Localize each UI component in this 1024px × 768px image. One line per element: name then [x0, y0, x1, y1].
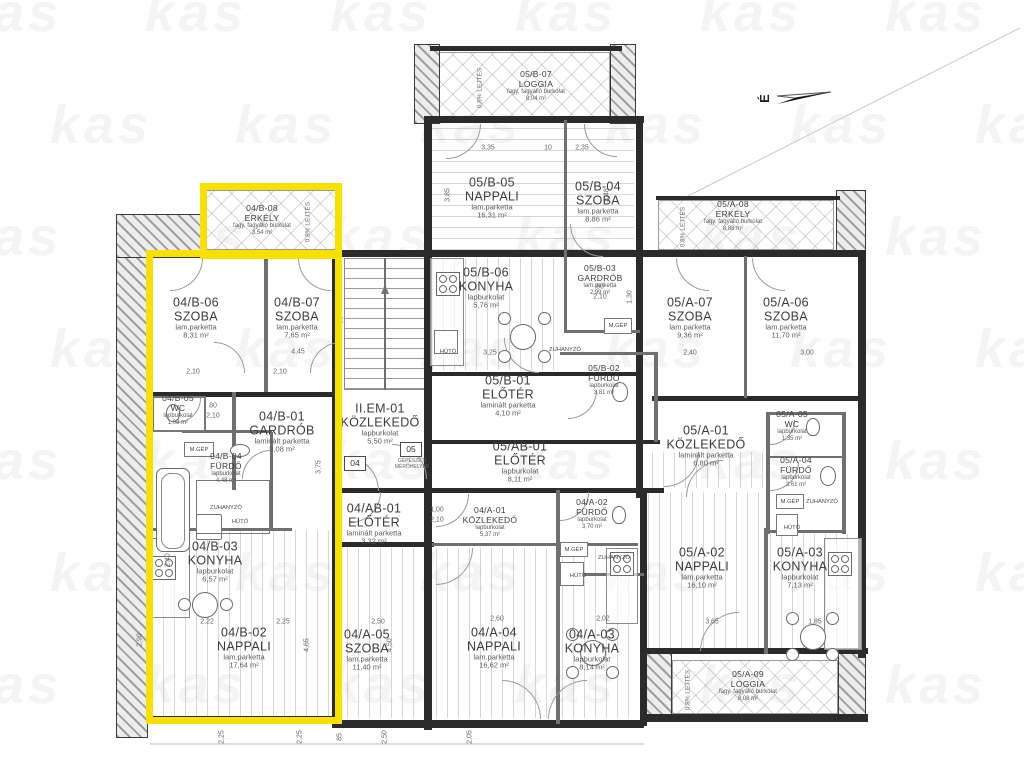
- wall-erkely-pier-right: [836, 190, 866, 256]
- room-name: WC: [162, 403, 194, 413]
- dimension-label: 3,65: [705, 619, 719, 626]
- entrance-marker-04: 04: [344, 456, 366, 471]
- room-name: FÜRDŐ: [210, 461, 242, 471]
- room-label-04b06: 04/B-06 SZOBA lam.parketta 8,31 m²: [173, 296, 219, 341]
- washer-label: M.GÉP: [609, 323, 628, 329]
- table: [510, 324, 536, 350]
- chair: [178, 598, 191, 611]
- dimension-label: 3,35: [481, 145, 495, 152]
- washer-label: M.GÉP: [781, 499, 800, 505]
- wall: [332, 488, 664, 493]
- dimension-label: 2,40: [683, 350, 697, 357]
- floor-plan: kaskaskaskaskaskaskaskaskaskaskaskaskask…: [0, 0, 1024, 768]
- wall: [203, 186, 339, 190]
- washer-label: M.GÉP: [190, 447, 209, 453]
- room-id: 05/B-05: [465, 176, 519, 190]
- dimension-label: 4,45: [291, 349, 305, 356]
- room-name: GARDRÓB: [249, 424, 314, 438]
- room-label-05a03: 05/A-03 KONYHA lapburkolat 7,13 m²: [773, 546, 828, 591]
- north-label: É: [757, 94, 772, 103]
- room-material: lapburkolat: [210, 471, 242, 478]
- partition: [556, 490, 560, 724]
- room-area: 16,10 m²: [675, 582, 729, 590]
- partition: [842, 412, 846, 534]
- fridge-label: HŰTŐ: [440, 349, 456, 355]
- room-name: KONYHA: [459, 280, 514, 294]
- room-id: II.EM-01: [340, 402, 419, 416]
- chair: [826, 648, 839, 661]
- chair: [538, 312, 551, 325]
- chair: [826, 612, 839, 625]
- bathtub: [156, 468, 190, 552]
- dimension-label: 1,00: [430, 507, 444, 514]
- room-area: 9,36 m²: [667, 332, 713, 340]
- room-id: 04/A-05: [344, 628, 390, 642]
- mechanical-note-line2: MÉRŐHELYEK: [395, 464, 429, 470]
- room-area: 9,08 m²: [249, 446, 314, 454]
- room-area: 4,48 m²: [210, 478, 242, 485]
- washer-label: M.GÉP: [565, 547, 584, 553]
- room-name: NAPPALI: [675, 560, 729, 574]
- room-name: ERKÉLY: [233, 213, 291, 223]
- room-area: 8,86 m²: [575, 216, 621, 224]
- room-name: ELŐTÉR: [480, 388, 535, 402]
- room-area: 7,65 m²: [274, 332, 320, 340]
- partition: [264, 256, 268, 392]
- wall: [652, 396, 864, 401]
- room-area: 8,08 m²: [719, 696, 777, 703]
- room-label-05b05: 05/B-05 NAPPALI lam.parketta 16,31 m²: [465, 176, 519, 221]
- mechanical-note: GÉPÉSZETI MÉRŐHELYEK: [395, 458, 429, 470]
- wall-left-boundary: [116, 214, 148, 738]
- slope-label: 0,8% LEJTÉS: [685, 670, 692, 710]
- wall: [424, 116, 432, 730]
- dimension-label: 2,10: [430, 517, 444, 524]
- room-name: ELŐTÉR: [493, 454, 548, 468]
- chair: [786, 612, 799, 625]
- room-id: 05/A-01: [666, 424, 745, 438]
- room-id: 04/B-06: [173, 296, 219, 310]
- partition: [432, 543, 638, 546]
- partition: [564, 256, 567, 332]
- room-material: fagy. fagyálló burkolat: [719, 689, 777, 696]
- wall-loggia9-pier-right: [838, 650, 866, 722]
- room-label-05a01: 05/A-01 KÖZLEKEDŐ laminált parketta 6,80…: [666, 424, 745, 469]
- dimension-label: 2,10: [206, 413, 220, 420]
- dimension-label: 80: [209, 403, 217, 410]
- dimension-label: 2,60: [490, 616, 504, 623]
- room-name: NAPPALI: [465, 190, 519, 204]
- room-area: 3,61 m²: [780, 482, 812, 489]
- dimension-label: 10: [544, 145, 552, 152]
- room-label-05a06: 05/A-06 SZOBA lam.parketta 11,70 m²: [763, 296, 809, 341]
- room-material: lapburkolat: [576, 517, 608, 524]
- room-id: 05/B-06: [459, 266, 514, 280]
- slope-label: 0,8% LEJTÉS: [477, 68, 484, 108]
- room-name: KÖZLEKEDŐ: [666, 438, 745, 452]
- shower-label: ZUHANYZÓ: [598, 555, 630, 561]
- room-name: KONYHA: [188, 554, 243, 568]
- room-label-05b01: 05/B-01 ELŐTÉR laminált parketta 4,10 m²: [480, 374, 535, 419]
- room-name: WC: [776, 419, 808, 429]
- room-name: SZOBA: [274, 310, 320, 324]
- room-label-04a05: 04/A-05 SZOBA lam.parketta 11,40 m²: [344, 628, 390, 673]
- room-area: 5,76 m²: [459, 302, 514, 310]
- room-id: 04/B-02: [217, 626, 271, 640]
- dimension-label: 2,10: [273, 369, 287, 376]
- dimension-label: 2,25: [276, 619, 290, 626]
- table: [800, 624, 826, 650]
- room-name: SZOBA: [575, 194, 621, 208]
- room-name: SZOBA: [763, 310, 809, 324]
- dimension-label: 1,85: [808, 619, 822, 626]
- room-name: KÖZLEKEDŐ: [340, 416, 419, 430]
- dimension-label: 2,40: [165, 553, 172, 567]
- slope-label: 0,8% LEJTÉS: [305, 202, 312, 242]
- room-material: fagy. fagyálló burkolat: [704, 219, 762, 226]
- dimension-label: 3,00: [800, 350, 814, 357]
- dimension-label: 2,50: [371, 619, 385, 626]
- room-name: KONYHA: [565, 642, 620, 656]
- room-label-04b07: 04/B-07 SZOBA lam.parketta 7,65 m²: [274, 296, 320, 341]
- room-label-05a07: 05/A-07 SZOBA lam.parketta 9,36 m²: [667, 296, 713, 341]
- dimension-label: 4,65: [304, 638, 311, 652]
- room-label-04a04: 04/A-04 NAPPALI lam.parketta 16,62 m²: [467, 626, 521, 671]
- room-area: 8,31 m²: [173, 332, 219, 340]
- chair: [786, 648, 799, 661]
- room-label-04b04: 04/B-04 FÜRDŐ lapburkolat 4,48 m²: [210, 452, 242, 484]
- stair-divider: [384, 258, 386, 390]
- room-area: 8,11 m²: [493, 476, 548, 484]
- room-id: 04/B-03: [188, 540, 243, 554]
- room-name: NAPPALI: [217, 640, 271, 654]
- room-name: FÜRDŐ: [588, 373, 620, 383]
- room-name: KÖZLEKEDŐ: [463, 515, 518, 525]
- room-name: LOGGIA: [507, 79, 565, 89]
- room-area: 16,62 m²: [467, 662, 521, 670]
- room-label-05b04: 05/B-04 SZOBA lam.parketta 8,86 m²: [575, 180, 621, 225]
- room-label-05b07: 05/B-07 LOGGIA fagy. fagyálló burkolat 8…: [507, 70, 565, 102]
- partition: [764, 528, 768, 654]
- room-area: 11,70 m²: [763, 332, 809, 340]
- room-material: lapburkolat: [776, 429, 808, 436]
- room-label-05a04: 05/A-04 FÜRDŐ lapburkolat 3,61 m²: [780, 456, 812, 488]
- room-name: SZOBA: [173, 310, 219, 324]
- room-label-04b08: 04/B-08 ERKÉLY fagy. fagyálló burkolat 3…: [233, 204, 291, 236]
- room-name: SZOBA: [344, 642, 390, 656]
- wall: [640, 490, 647, 726]
- room-id: 05/A-02: [675, 546, 729, 560]
- room-material: fagy. fagyálló burkolat: [507, 89, 565, 96]
- dimension-label: 2,02: [596, 616, 610, 623]
- room-name: NAPPALI: [467, 640, 521, 654]
- dimension-label: 2,50: [382, 730, 389, 744]
- slope-label: 0,8% LEJTÉS: [680, 207, 687, 247]
- dimension-label: 3,75: [316, 460, 323, 474]
- cooktop: [828, 552, 852, 576]
- dimension-label: 2,05: [467, 730, 474, 744]
- room-label-05a09: 05/A-09 LOGGIA fagy. fagyálló burkolat 8…: [719, 670, 777, 702]
- dimension-label: 3,85: [445, 188, 452, 202]
- room-id: 05/B-01: [480, 374, 535, 388]
- shower-label: ZUHANYZÓ: [806, 499, 838, 505]
- chair: [498, 312, 511, 325]
- room-id: 05/B-04: [575, 180, 621, 194]
- room-id: 04/B-07: [274, 296, 320, 310]
- room-name: LOGGIA: [719, 679, 777, 689]
- room-area: 3,70 m²: [576, 524, 608, 531]
- room-name: ERKÉLY: [704, 209, 762, 219]
- room-label-05a05: 05/A-05 WC lapburkolat 1,35 m²: [776, 410, 808, 442]
- room-area: 2,99 m²: [577, 290, 622, 297]
- room-area: 11,40 m²: [344, 664, 390, 672]
- room-material: lam.parketta: [577, 283, 622, 290]
- entrance-marker-05: 05: [400, 442, 422, 457]
- room-id: 04/B-01: [249, 410, 314, 424]
- room-id: 05/A-06: [763, 296, 809, 310]
- wall: [644, 714, 868, 722]
- dimension-label: 2,25: [297, 730, 304, 744]
- dimension-label: 2,25: [219, 730, 226, 744]
- room-name: KONYHA: [773, 560, 828, 574]
- room-area: 6,57 m²: [188, 576, 243, 584]
- chair: [498, 350, 511, 363]
- wall: [148, 250, 866, 257]
- fridge-label: HŰTŐ: [232, 519, 248, 525]
- room-area: 3,81 m²: [588, 390, 620, 397]
- fridge-label: HŰTŐ: [570, 573, 586, 579]
- cooktop: [436, 272, 460, 296]
- room-area: 6,80 m²: [666, 460, 745, 468]
- room-area: 1,35 m²: [776, 436, 808, 443]
- dimension-label: 85: [337, 733, 344, 741]
- chair: [220, 598, 233, 611]
- room-area: 3,54 m²: [233, 230, 291, 237]
- wall: [332, 720, 644, 728]
- room-label-04b05: 04/B-05 WC lapburkolat 1,08 m²: [162, 394, 194, 426]
- room-material: lapburkolat: [588, 383, 620, 390]
- room-area: 8,88 m²: [704, 226, 762, 233]
- north-arrow: É: [760, 88, 833, 108]
- room-material: lapburkolat: [463, 525, 518, 532]
- wall: [430, 46, 622, 51]
- room-id: 04/AB-01: [346, 502, 401, 516]
- room-material: fagy. fagyálló burkolat: [233, 223, 291, 230]
- room-material: lapburkolat: [162, 413, 194, 420]
- wall-loggia-pier-right: [610, 44, 636, 124]
- room-id: 05/A-03: [773, 546, 828, 560]
- room-area: 16,31 m²: [465, 212, 519, 220]
- toilet: [806, 418, 820, 436]
- room-label-iiem01: II.EM-01 KÖZLEKEDŐ lapburkolat 5,50 m²: [340, 402, 419, 447]
- room-area: 1,08 m²: [162, 420, 194, 427]
- room-area: 17,64 m²: [217, 662, 271, 670]
- shower-label: ZUHANYZÓ: [210, 505, 242, 511]
- room-area: 3,32 m²: [346, 538, 401, 546]
- partition: [564, 120, 567, 256]
- room-name: GARDRÓB: [577, 273, 622, 283]
- dimension-label: 2,90: [137, 633, 144, 647]
- wall-loggia9-pier-left: [644, 650, 672, 722]
- toilet: [612, 506, 626, 524]
- room-id: 05/A-07: [667, 296, 713, 310]
- wall: [428, 116, 644, 123]
- room-id: 04/A-04: [467, 626, 521, 640]
- room-label-05a08: 05/A-08 ERKÉLY fagy. fagyálló burkolat 8…: [704, 200, 762, 232]
- room-material: lapburkolat: [780, 475, 812, 482]
- room-id: 04/A-03: [565, 628, 620, 642]
- room-label-05ab01: 05/AB-01 ELŐTÉR lapburkolat 8,11 m²: [493, 440, 548, 485]
- room-label-05b02: 05/B-02 FÜRDŐ lapburkolat 3,81 m²: [588, 364, 620, 396]
- room-area: 5,37 m²: [463, 532, 518, 539]
- room-name: SZOBA: [667, 310, 713, 324]
- north-arrow-icon: [775, 88, 833, 108]
- room-area: 8,14 m²: [565, 664, 620, 672]
- dimension-label: 3,25: [483, 350, 497, 357]
- room-label-05b06: 05/B-06 KONYHA lapburkolat 5,76 m²: [459, 266, 514, 311]
- fridge-label: HŰTŐ: [784, 525, 800, 531]
- room-label-04b01: 04/B-01 GARDRÓB laminált parketta 9,08 m…: [249, 410, 314, 455]
- dimension-label: 90: [338, 316, 345, 324]
- room-label-04ab01: 04/AB-01 ELŐTÉR laminált parketta 3,32 m…: [346, 502, 401, 547]
- partition: [744, 256, 747, 398]
- shower-label: ZUHANYZÓ: [549, 347, 581, 353]
- room-label-05b03: 05/B-03 GARDRÓB lam.parketta 2,99 m²: [577, 264, 622, 296]
- room-label-04a01: 04/A-01 KÖZLEKEDŐ lapburkolat 5,37 m²: [463, 506, 518, 538]
- room-name: ELŐTÉR: [346, 516, 401, 530]
- room-name: FÜRDŐ: [780, 465, 812, 475]
- room-area: 7,13 m²: [773, 582, 828, 590]
- table: [192, 592, 218, 618]
- room-label-05a02: 05/A-02 NAPPALI lam.parketta 16,10 m²: [675, 546, 729, 591]
- dimension-label: 1,30: [627, 290, 634, 304]
- dimension-label: 2,35: [575, 145, 589, 152]
- room-label-04a02: 04/A-02 FÜRDŐ lapburkolat 3,70 m²: [576, 498, 608, 530]
- wall-loggia-pier-left: [414, 44, 440, 124]
- room-id: 05/AB-01: [493, 440, 548, 454]
- wall: [148, 716, 342, 724]
- dimension-label: 2,22: [200, 619, 214, 626]
- room-label-04a03: 04/A-03 KONYHA lapburkolat 8,14 m²: [565, 628, 620, 673]
- dimension-label: 2,10: [186, 369, 200, 376]
- room-area: 4,10 m²: [480, 410, 535, 418]
- room-label-04b03: 04/B-03 KONYHA lapburkolat 6,57 m²: [188, 540, 243, 585]
- room-name: FÜRDŐ: [576, 507, 608, 517]
- room-area: 8,04 m²: [507, 96, 565, 103]
- room-label-04b02: 04/B-02 NAPPALI lam.parketta 17,64 m²: [217, 626, 271, 671]
- partition: [654, 352, 658, 442]
- washbasin: [820, 466, 836, 486]
